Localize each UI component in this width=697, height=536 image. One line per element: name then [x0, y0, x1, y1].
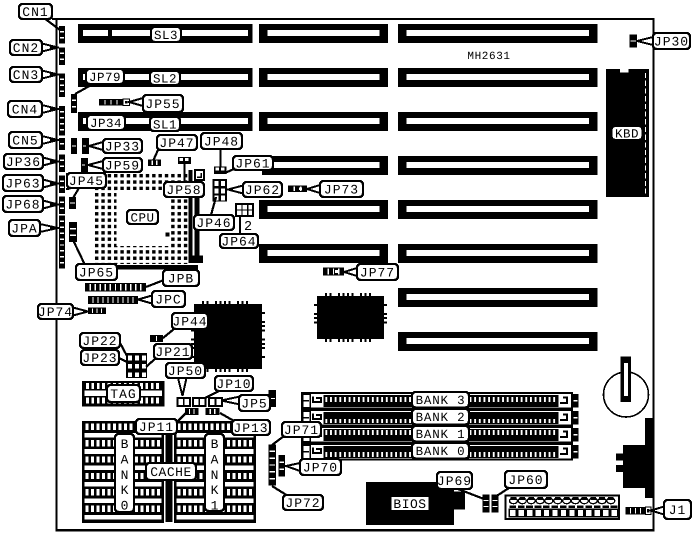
svg-text:CN2: CN2 [13, 41, 39, 56]
svg-text:BANK 0: BANK 0 [416, 445, 466, 459]
svg-text:SL2: SL2 [153, 72, 177, 86]
svg-text:SL3: SL3 [154, 29, 178, 43]
svg-text:CACHE: CACHE [150, 465, 192, 480]
svg-text:2: 2 [244, 220, 252, 235]
svg-text:JP34: JP34 [90, 117, 122, 131]
svg-text:JP13: JP13 [233, 421, 268, 436]
svg-text:JP47: JP47 [159, 136, 194, 151]
svg-text:JP61: JP61 [235, 156, 270, 171]
svg-text:JP70: JP70 [303, 460, 338, 475]
svg-text:JP11: JP11 [139, 420, 174, 435]
svg-text:JP71: JP71 [284, 423, 319, 438]
svg-text:SL1: SL1 [153, 118, 177, 132]
svg-text:CN5: CN5 [12, 133, 38, 148]
svg-text:JP45: JP45 [69, 174, 104, 189]
svg-text:JP68: JP68 [5, 197, 40, 212]
svg-text:JP30: JP30 [654, 34, 689, 49]
svg-text:CN4: CN4 [12, 102, 38, 117]
svg-text:JP60: JP60 [508, 473, 543, 488]
svg-text:CPU: CPU [130, 211, 154, 225]
svg-text:K: K [121, 483, 129, 498]
svg-text:N: N [211, 468, 219, 483]
svg-text:JP77: JP77 [360, 265, 395, 280]
svg-text:BANK 2: BANK 2 [416, 411, 466, 425]
svg-text:J1: J1 [669, 503, 687, 518]
svg-text:JP58: JP58 [166, 183, 201, 198]
svg-text:B: B [121, 437, 129, 452]
svg-text:JP48: JP48 [204, 134, 239, 149]
svg-text:MH2631: MH2631 [467, 51, 510, 63]
svg-text:JP5: JP5 [241, 396, 267, 411]
svg-text:JPA: JPA [11, 221, 37, 236]
svg-text:JP10: JP10 [216, 377, 251, 392]
svg-text:JP64: JP64 [221, 234, 256, 249]
svg-text:JP50: JP50 [168, 364, 203, 379]
svg-text:1: 1 [211, 499, 219, 514]
svg-text:JP36: JP36 [6, 155, 41, 170]
svg-text:JPC: JPC [155, 292, 181, 307]
svg-text:0: 0 [121, 499, 129, 514]
svg-text:BANK 1: BANK 1 [416, 428, 466, 442]
svg-text:JP22: JP22 [82, 334, 117, 349]
svg-text:CN1: CN1 [22, 5, 48, 20]
svg-text:K: K [211, 483, 219, 498]
svg-text:JP74: JP74 [38, 305, 73, 320]
svg-text:JP62: JP62 [245, 183, 280, 198]
svg-text:KBD: KBD [615, 127, 639, 141]
svg-text:JP21: JP21 [155, 345, 190, 360]
svg-text:JP59: JP59 [105, 158, 140, 173]
svg-text:JP33: JP33 [105, 139, 140, 154]
svg-text:BANK 3: BANK 3 [416, 394, 466, 408]
svg-text:TAG: TAG [110, 387, 136, 402]
svg-text:JP72: JP72 [285, 496, 320, 511]
svg-text:JP63: JP63 [5, 176, 40, 191]
svg-text:CN3: CN3 [13, 68, 39, 83]
svg-text:JP73: JP73 [324, 182, 359, 197]
svg-text:JPB: JPB [168, 271, 194, 286]
svg-text:BIOS: BIOS [393, 497, 426, 512]
svg-text:JP46: JP46 [196, 216, 231, 231]
svg-text:JP23: JP23 [82, 351, 117, 366]
svg-text:A: A [121, 452, 129, 467]
svg-text:JP44: JP44 [172, 314, 207, 329]
svg-text:B: B [211, 437, 219, 452]
svg-text:A: A [211, 452, 219, 467]
svg-text:JP69: JP69 [437, 474, 472, 489]
svg-text:JP55: JP55 [145, 97, 180, 112]
svg-text:N: N [121, 468, 129, 483]
svg-text:JP65: JP65 [79, 265, 114, 280]
svg-text:JP79: JP79 [89, 71, 121, 85]
